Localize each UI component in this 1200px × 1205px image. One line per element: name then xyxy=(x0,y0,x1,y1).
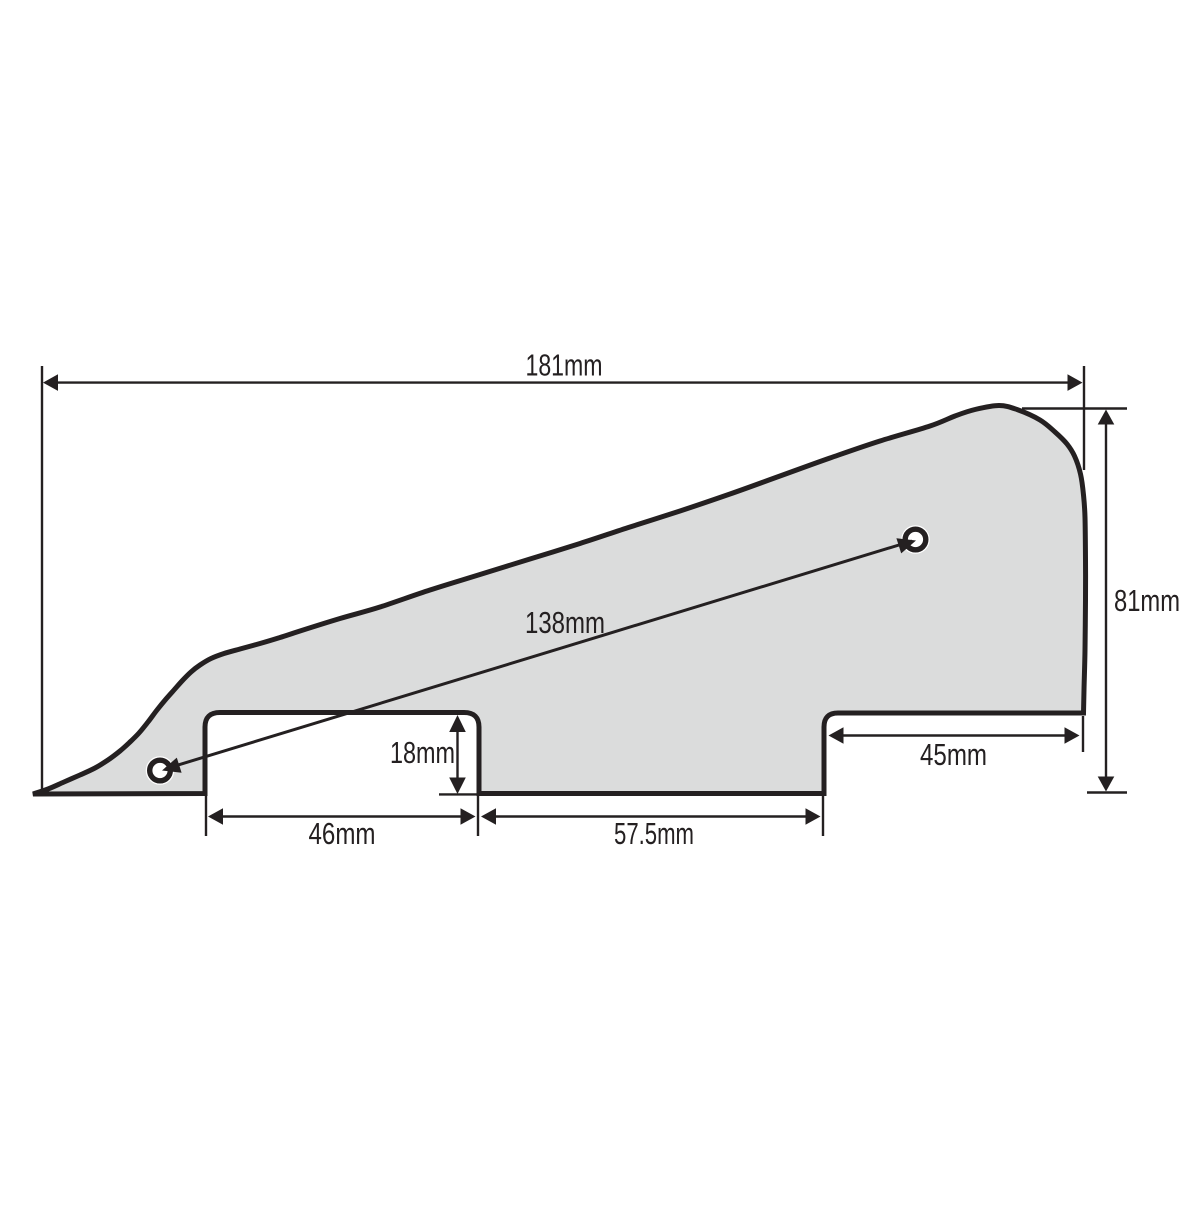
svg-text:81mm: 81mm xyxy=(1114,584,1180,618)
svg-text:18mm: 18mm xyxy=(390,736,455,770)
svg-text:57.5mm: 57.5mm xyxy=(614,817,694,851)
svg-text:45mm: 45mm xyxy=(920,738,987,772)
svg-text:181mm: 181mm xyxy=(526,349,603,383)
svg-text:138mm: 138mm xyxy=(525,606,605,640)
svg-text:46mm: 46mm xyxy=(309,817,376,851)
